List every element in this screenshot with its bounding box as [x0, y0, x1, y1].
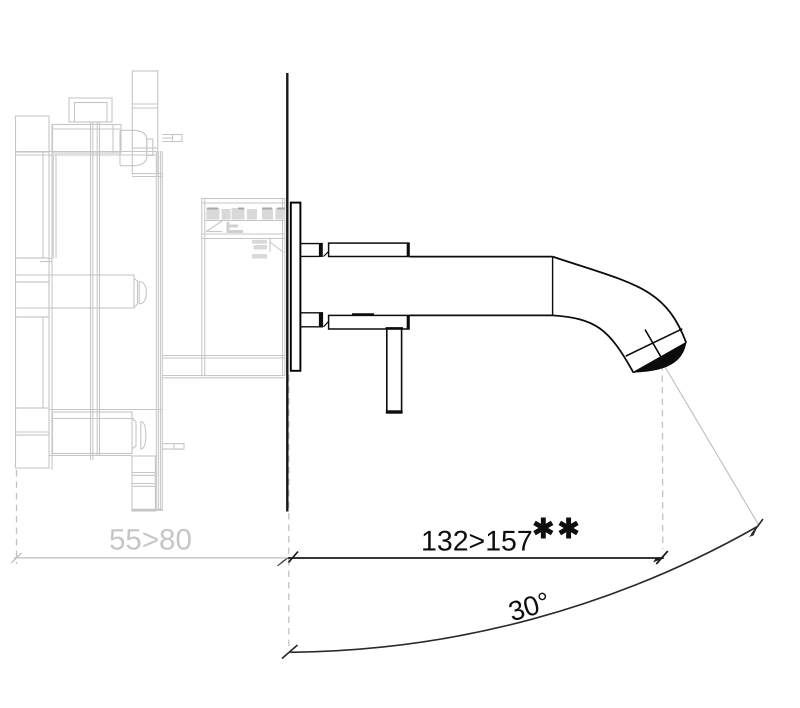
- svg-text:30°: 30°: [505, 586, 554, 628]
- svg-text:55>80: 55>80: [109, 524, 192, 557]
- svg-text:132>157: 132>157: [421, 526, 533, 558]
